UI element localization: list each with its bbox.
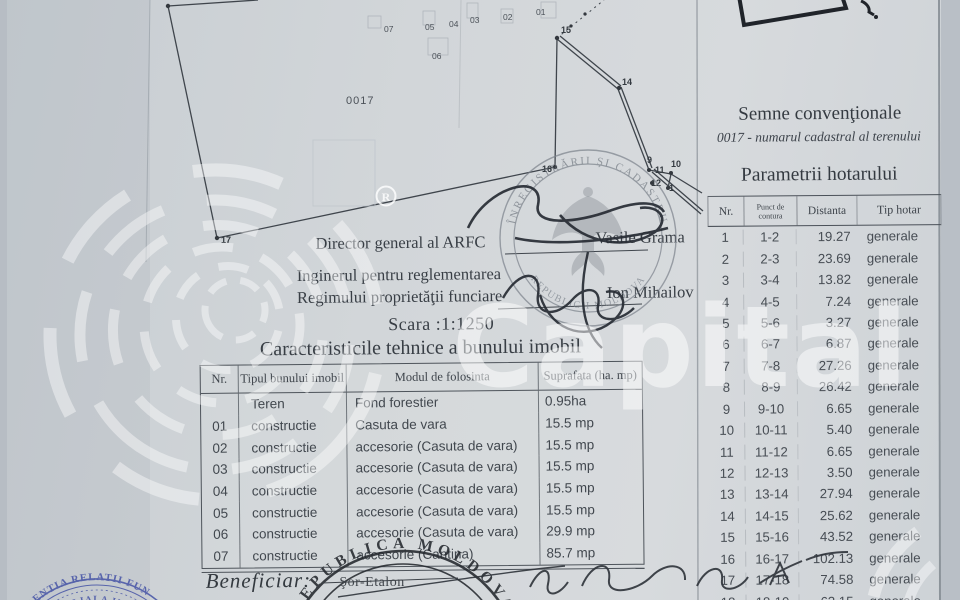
boundary-row: 1414-1525.62generale <box>710 504 942 527</box>
boundary-row: 1010-115.40generale <box>709 418 941 441</box>
col-header-distance: Distanta <box>797 196 857 225</box>
boundary-row: 1313-1427.94generale <box>710 482 942 505</box>
boundary-row: 1616-17102.13generale <box>710 547 942 570</box>
col-header-segment: Punct de contura <box>744 196 797 225</box>
col-header-type: Tip hotar <box>857 195 940 225</box>
boundary-row: 11-219.27generale <box>708 225 940 248</box>
col-header-nr: Nr. <box>708 197 744 226</box>
boundary-row: 22-323.69generale <box>708 247 940 270</box>
boundary-row: 44-57.24generale <box>708 289 940 312</box>
boundary-row: 77-827.26generale <box>709 354 941 377</box>
boundary-table-header: Nr. Punct de contura Distanta Tip hotar <box>707 194 941 227</box>
document-page: 0017 070504030201061716151491112101 Dire… <box>0 0 960 600</box>
boundary-row: 99-106.65generale <box>709 397 941 420</box>
boundary-row: 1212-133.50generale <box>709 461 941 484</box>
boundary-table-body: 11-219.27generale22-323.69generale33-413… <box>708 225 943 600</box>
boundary-row: 1111-126.65generale <box>709 439 941 462</box>
boundary-row: 55-63.27generale <box>708 311 940 334</box>
legend-note: 0017 - numarul cadastral al terenului <box>698 128 940 146</box>
legend-title: Semne convenţionale <box>700 102 940 126</box>
right-section: Semne convenţionale 0017 - numarul cadas… <box>0 0 960 600</box>
boundary-row: 88-926.42generale <box>709 375 941 398</box>
boundary-row: 1717-1874.58generale <box>710 568 942 591</box>
boundary-table-title: Parametrii hotarului <box>700 163 938 187</box>
boundary-row: 33-413.82generale <box>708 268 940 291</box>
boundary-row: 1818-1963.15generale <box>710 590 942 600</box>
boundary-row: 1515-1643.52generale <box>710 525 942 548</box>
boundary-row: 66-76.87generale <box>708 332 940 355</box>
